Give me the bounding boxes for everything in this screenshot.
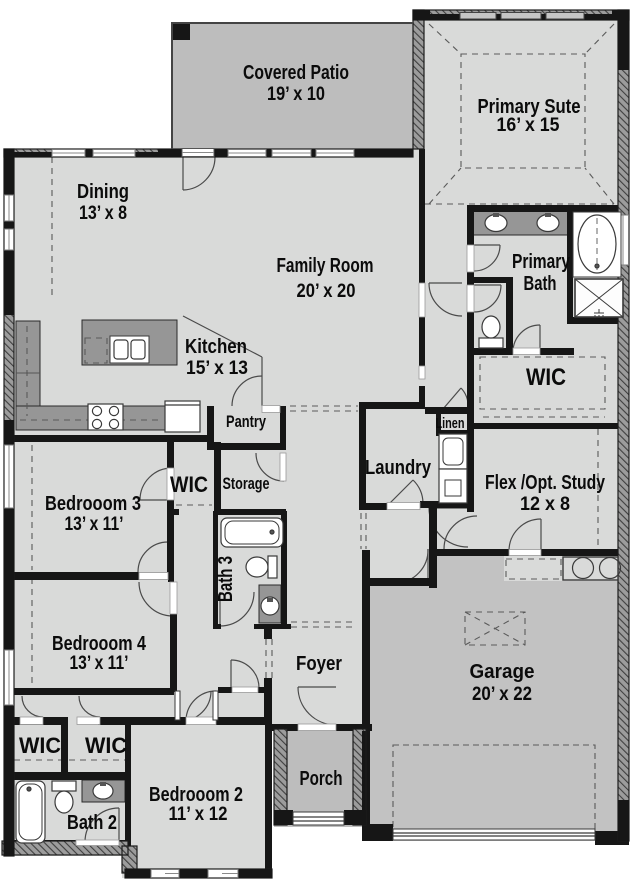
svg-text:11’ x 12: 11’ x 12 — [169, 804, 228, 825]
svg-text:Primary: Primary — [512, 251, 571, 273]
svg-text:Bedrooom 2: Bedrooom 2 — [149, 784, 243, 806]
svg-text:WIC: WIC — [170, 472, 208, 497]
svg-text:Covered Patio: Covered Patio — [243, 62, 349, 84]
svg-text:13’ x 8: 13’ x 8 — [79, 203, 127, 224]
svg-text:WIC: WIC — [526, 364, 566, 391]
svg-text:Bath 2: Bath 2 — [67, 812, 117, 834]
svg-text:13’ x 11’: 13’ x 11’ — [70, 653, 129, 674]
svg-text:15’ x 13: 15’ x 13 — [186, 358, 248, 379]
svg-text:Laundry: Laundry — [365, 457, 432, 479]
svg-text:Linen: Linen — [436, 415, 465, 432]
svg-text:19’ x 10: 19’ x 10 — [267, 84, 325, 105]
svg-text:Storage: Storage — [223, 474, 270, 493]
svg-text:Pantry: Pantry — [226, 412, 266, 431]
svg-text:Dining: Dining — [77, 181, 129, 203]
svg-text:Foyer: Foyer — [296, 653, 342, 675]
svg-text:12 x 8: 12 x 8 — [520, 494, 570, 515]
svg-text:WIC: WIC — [19, 733, 61, 758]
svg-text:Garage: Garage — [470, 661, 535, 683]
svg-text:Family Room: Family Room — [277, 255, 374, 277]
svg-text:Bedrooom 3: Bedrooom 3 — [45, 493, 141, 515]
svg-text:13’ x 11’: 13’ x 11’ — [65, 514, 124, 535]
svg-text:Kitchen: Kitchen — [185, 336, 247, 358]
svg-text:16’ x 15: 16’ x 15 — [497, 115, 560, 136]
svg-text:Porch: Porch — [300, 768, 343, 790]
svg-text:20’ x 22: 20’ x 22 — [472, 684, 532, 705]
svg-text:Bedrooom 4: Bedrooom 4 — [52, 633, 147, 655]
svg-text:WIC: WIC — [85, 733, 127, 758]
svg-text:Bath: Bath — [524, 273, 557, 295]
svg-text:Flex /Opt. Study: Flex /Opt. Study — [485, 472, 606, 494]
svg-text:Bath 3: Bath 3 — [215, 556, 237, 602]
svg-text:20’ x 20: 20’ x 20 — [297, 281, 356, 302]
